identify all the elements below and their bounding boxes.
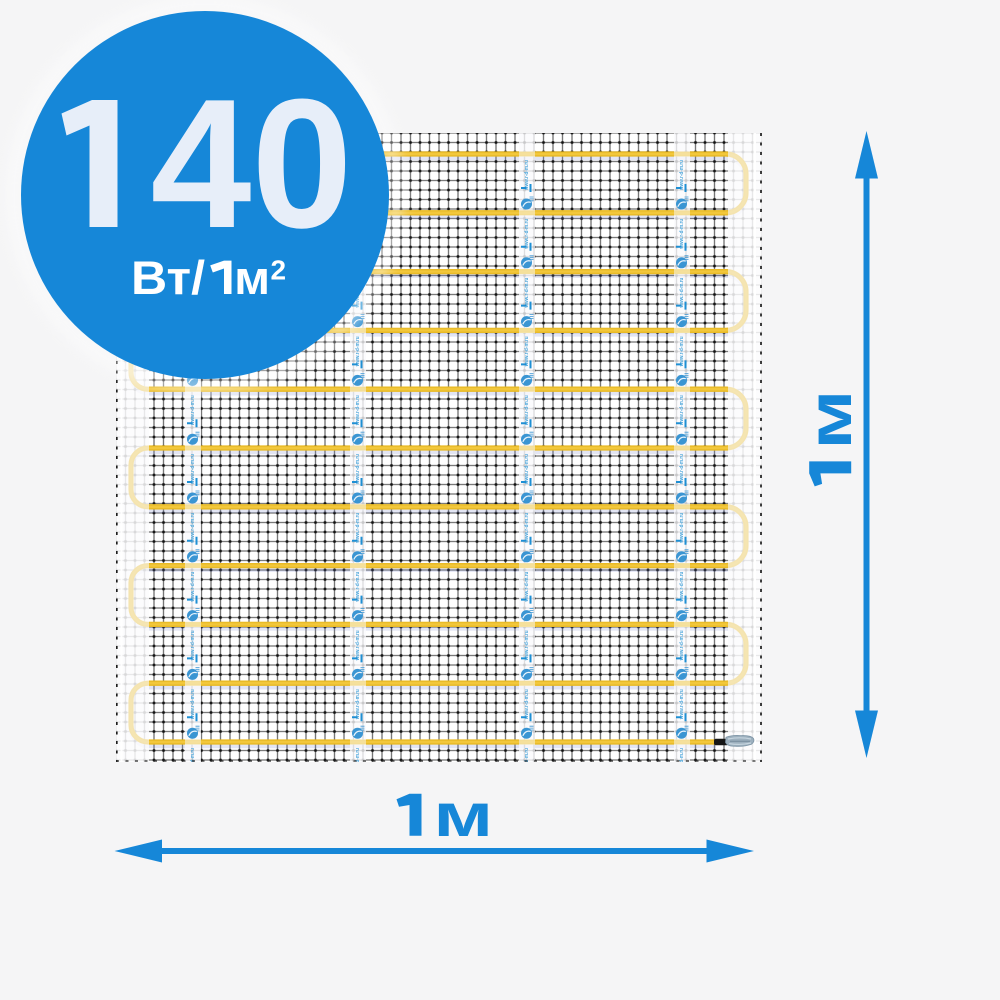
svg-text:40: 40 <box>151 60 353 266</box>
svg-text:2: 2 <box>271 255 287 286</box>
svg-text:м: м <box>234 251 270 304</box>
svg-text:Вт/: Вт/ <box>131 251 205 304</box>
